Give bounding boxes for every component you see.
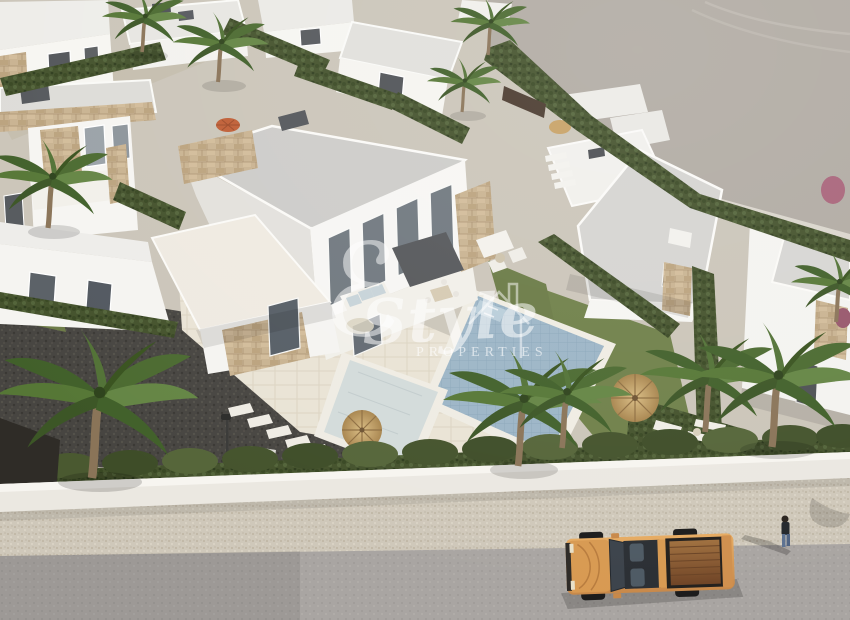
sunlight-wash	[0, 0, 850, 620]
aerial-villa-render: ℰ Style PROPERTIES	[0, 0, 850, 620]
scene-canvas	[0, 0, 850, 620]
